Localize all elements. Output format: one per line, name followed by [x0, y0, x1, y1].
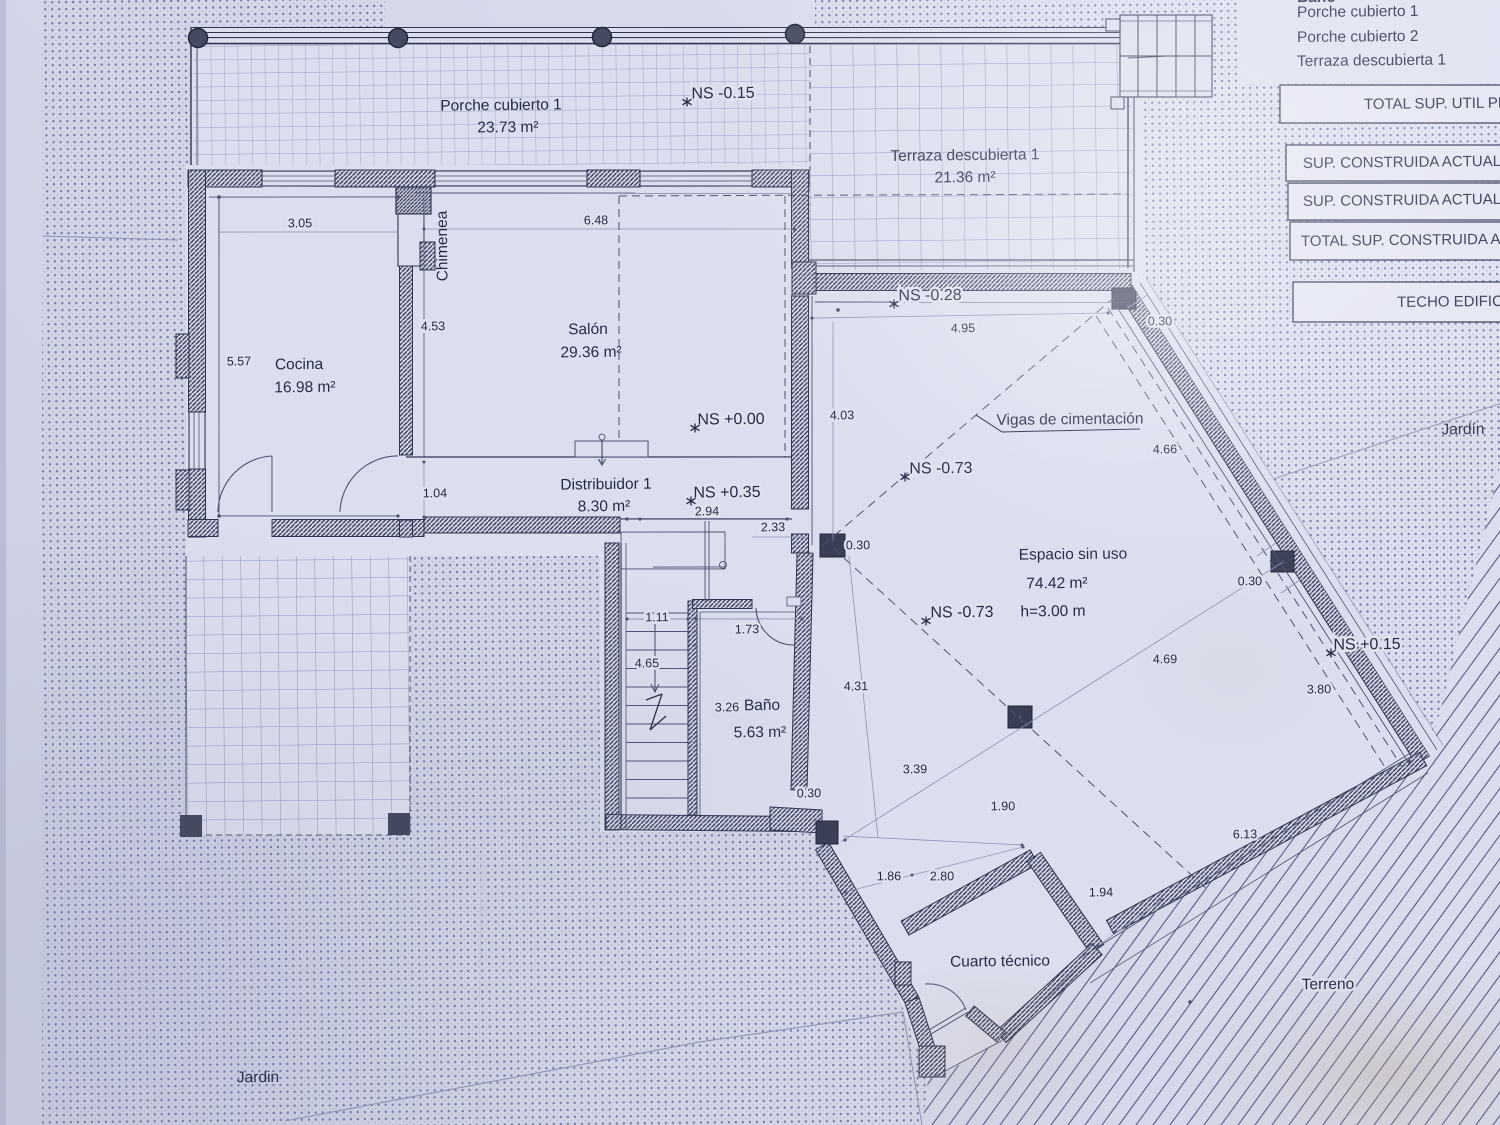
svg-text:2.80: 2.80	[930, 869, 955, 883]
svg-text:Salón: Salón	[568, 321, 608, 338]
svg-text:Porche cubierto 1: Porche cubierto 1	[440, 96, 562, 114]
svg-text:6.13: 6.13	[1233, 827, 1258, 841]
svg-text:NS +0.15: NS +0.15	[1333, 636, 1400, 654]
svg-text:NS -0.73: NS -0.73	[930, 604, 993, 622]
svg-text:23.73 m²: 23.73 m²	[477, 119, 538, 137]
svg-text:29.36 m²: 29.36 m²	[560, 344, 621, 362]
svg-text:h=3.00 m: h=3.00 m	[1020, 603, 1085, 621]
svg-text:6.48: 6.48	[584, 213, 609, 227]
svg-text:1.94: 1.94	[1089, 885, 1114, 899]
svg-text:1.90: 1.90	[991, 799, 1016, 813]
svg-text:4.53: 4.53	[421, 319, 446, 333]
svg-text:3.39: 3.39	[903, 762, 928, 776]
svg-text:Cocina: Cocina	[275, 356, 324, 374]
svg-text:1.04: 1.04	[423, 486, 448, 500]
svg-text:Chimenea: Chimenea	[434, 210, 452, 281]
svg-text:3.05: 3.05	[288, 216, 313, 230]
svg-text:Distribuidor 1: Distribuidor 1	[560, 476, 651, 494]
svg-text:5.57: 5.57	[227, 354, 252, 368]
svg-text:16.98 m²: 16.98 m²	[274, 379, 335, 397]
